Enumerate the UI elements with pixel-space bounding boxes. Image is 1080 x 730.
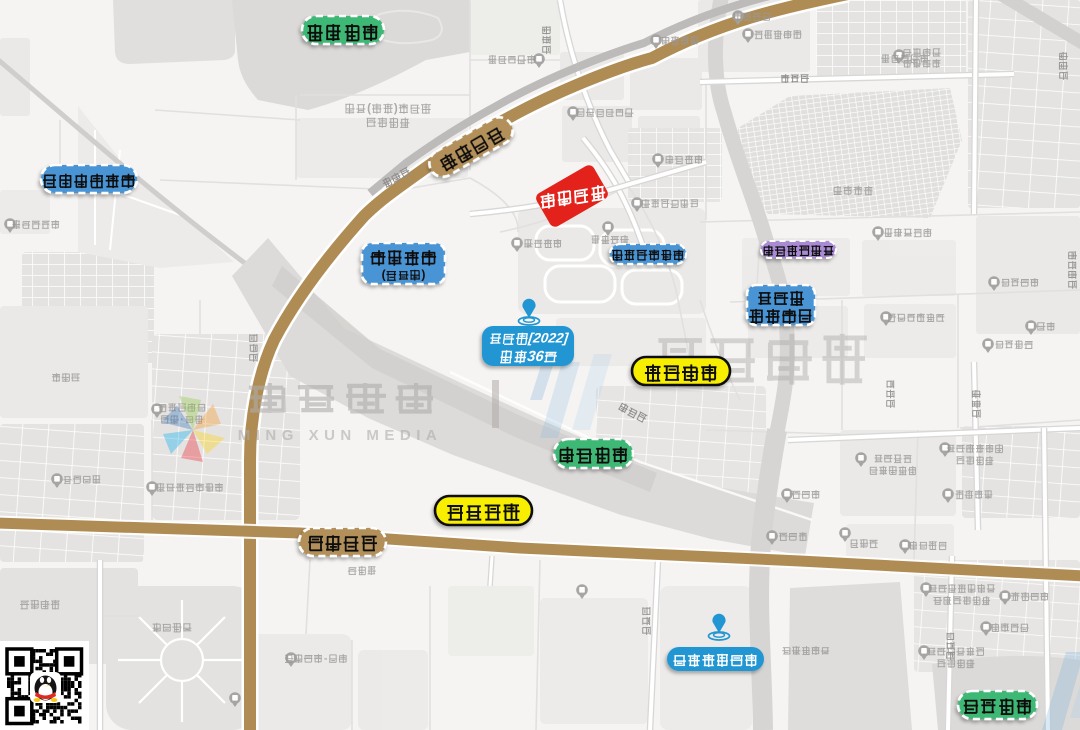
svg-text:-: - (324, 653, 327, 664)
svg-text:): ) (421, 268, 425, 282)
svg-text:): ) (394, 102, 398, 115)
svg-text:36: 36 (526, 349, 545, 365)
svg-text:MING XUN MEDIA: MING XUN MEDIA (238, 427, 443, 444)
svg-text:[2022]: [2022] (527, 331, 570, 346)
svg-text:(: ( (367, 102, 371, 115)
